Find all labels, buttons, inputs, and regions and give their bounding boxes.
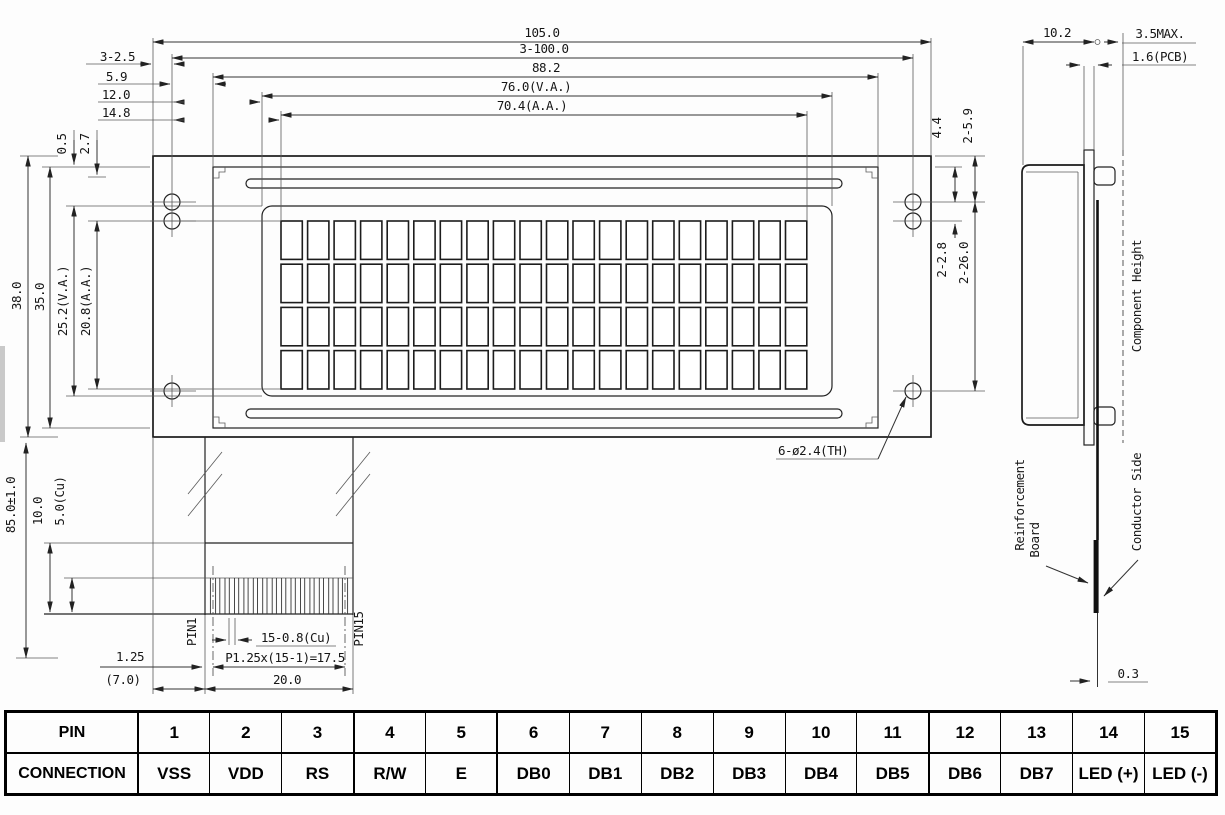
front-view: 6-ø2.4(TH) 105.0 3-100.0 88.2 76.0(V.A.)… <box>9 25 985 459</box>
pin-connection: VSS <box>138 753 210 795</box>
contact-fingers <box>210 578 347 614</box>
dim-12-0: 12.0 <box>102 87 130 102</box>
dim-4-4: 4.4 <box>929 117 944 138</box>
dim-14-8: 14.8 <box>102 105 130 120</box>
dim-bezel-width: 88.2 <box>532 60 560 75</box>
dim-2-7: 2.7 <box>77 133 92 154</box>
pin-connection: DB7 <box>1001 753 1073 795</box>
pin-connection: DB6 <box>929 753 1001 795</box>
pin-number: 6 <box>497 712 569 754</box>
pin-number: 12 <box>929 712 1001 754</box>
pin-connection: DB1 <box>569 753 641 795</box>
dim-overall-height: 38.0 <box>9 282 24 310</box>
dim-1-6-pcb: 1.6(PCB) <box>1132 49 1188 64</box>
dim-1-25: 1.25 <box>116 649 144 664</box>
pin-table-section: PIN 1 2 3 4 5 6 7 8 9 10 11 12 13 14 15 … <box>4 710 1218 796</box>
pin-number: 9 <box>713 712 785 754</box>
bezel-corner-step <box>213 167 225 178</box>
bezel-corner-step <box>213 417 225 428</box>
character-grid <box>281 221 807 389</box>
pin-connection: R/W <box>354 753 426 795</box>
pin1-label: PIN1 <box>184 618 199 646</box>
dim-2-26-0: 2-26.0 <box>956 242 971 284</box>
lcd-module-drawing: 6-ø2.4(TH) 105.0 3-100.0 88.2 76.0(V.A.)… <box>0 0 1225 815</box>
pin-connection-row: CONNECTION VSS VDD RS R/W E DB0 DB1 DB2 … <box>6 753 1217 795</box>
pin-number: 1 <box>138 712 210 754</box>
pin-connection-table: PIN 1 2 3 4 5 6 7 8 9 10 11 12 13 14 15 … <box>4 710 1218 796</box>
dim-active-area-w: 70.4(A.A.) <box>497 98 567 113</box>
pin-number: 14 <box>1073 712 1145 754</box>
dim-5-0-cu: 5.0(Cu) <box>52 476 67 525</box>
top-slot <box>246 179 842 188</box>
pin-connection: DB4 <box>785 753 857 795</box>
break-marks <box>188 452 370 516</box>
dim-5-9: 5.9 <box>106 69 127 84</box>
pin-connection: DB3 <box>713 753 785 795</box>
pin-connection: DB2 <box>641 753 713 795</box>
pin-connection: RS <box>282 753 354 795</box>
pin-header: PIN <box>6 712 139 754</box>
dim-viewing-area-w: 76.0(V.A.) <box>501 79 571 94</box>
ffc-tail-view: 85.0±1.0 10.0 5.0(Cu) PIN1 PIN15 15-0.8(… <box>3 437 370 694</box>
mounting-tab-top <box>1094 167 1115 185</box>
reinforcement-label-line2: Board <box>1027 522 1042 557</box>
hole-callout-label: 6-ø2.4(TH) <box>778 443 848 458</box>
conductor-side-label: Conductor Side <box>1129 453 1144 551</box>
dim-3-5-max: 3.5MAX. <box>1135 26 1184 41</box>
dim-20-0: 20.0 <box>273 672 301 687</box>
dim-edge-to-hole: 3-2.5 <box>100 49 135 64</box>
dim-contact-pitch: P1.25x(15-1)=17.5 <box>225 650 344 665</box>
pin-number-row: PIN 1 2 3 4 5 6 7 8 9 10 11 12 13 14 15 <box>6 712 1217 754</box>
pin-number: 2 <box>210 712 282 754</box>
dim-0-3: 0.3 <box>1117 666 1138 681</box>
pin15-label: PIN15 <box>351 611 366 646</box>
connection-header: CONNECTION <box>6 753 139 795</box>
pin-number: 15 <box>1144 712 1216 754</box>
technical-drawing: 6-ø2.4(TH) 105.0 3-100.0 88.2 76.0(V.A.)… <box>0 0 1225 710</box>
ffc-cable-side <box>1096 200 1099 540</box>
pin-connection: VDD <box>210 753 282 795</box>
dim-2-2-8: 2-2.8 <box>934 242 949 277</box>
dim-10-2: 10.2 <box>1043 25 1071 40</box>
pin-number: 10 <box>785 712 857 754</box>
dim-bezel-height: 35.0 <box>32 283 47 311</box>
pin-connection: LED (-) <box>1144 753 1216 795</box>
pin-number: 8 <box>641 712 713 754</box>
bottom-slot <box>246 409 842 418</box>
dim-0-5: 0.5 <box>54 133 69 154</box>
reinforcement-board-side <box>1094 540 1099 613</box>
pcb-side <box>1084 150 1094 445</box>
dim-7-0: (7.0) <box>105 672 140 687</box>
pin-number: 4 <box>354 712 426 754</box>
dim-hole-span: 3-100.0 <box>519 41 568 56</box>
pin-number: 5 <box>426 712 498 754</box>
dim-total-length: 85.0±1.0 <box>3 477 18 533</box>
pin-number: 11 <box>857 712 929 754</box>
dim-overall-width: 105.0 <box>524 25 559 40</box>
dim-10-0: 10.0 <box>30 497 45 525</box>
pin-number: 13 <box>1001 712 1073 754</box>
dim-active-area-h: 20.8(A.A.) <box>78 266 93 336</box>
bezel-corner-step <box>866 417 878 428</box>
dim-viewing-area-h: 25.2(V.A.) <box>55 266 70 336</box>
pin-connection: DB5 <box>857 753 929 795</box>
dim-contact-width: 15-0.8(Cu) <box>261 630 331 645</box>
pin-connection: LED (+) <box>1073 753 1145 795</box>
bezel-corner-step <box>866 167 878 178</box>
pin-number: 7 <box>569 712 641 754</box>
pin-number: 3 <box>282 712 354 754</box>
module-body <box>1022 165 1084 425</box>
pin-connection: DB0 <box>497 753 569 795</box>
component-height-label: Component Height <box>1129 240 1144 352</box>
side-view: 10.2 3.5MAX. 1.6(PCB) 0.3 Component Heig… <box>1012 25 1196 687</box>
dim-2-5-9: 2-5.9 <box>960 108 975 143</box>
pin-connection: E <box>426 753 498 795</box>
reinforcement-label-line1: Reinforcement <box>1012 459 1027 550</box>
